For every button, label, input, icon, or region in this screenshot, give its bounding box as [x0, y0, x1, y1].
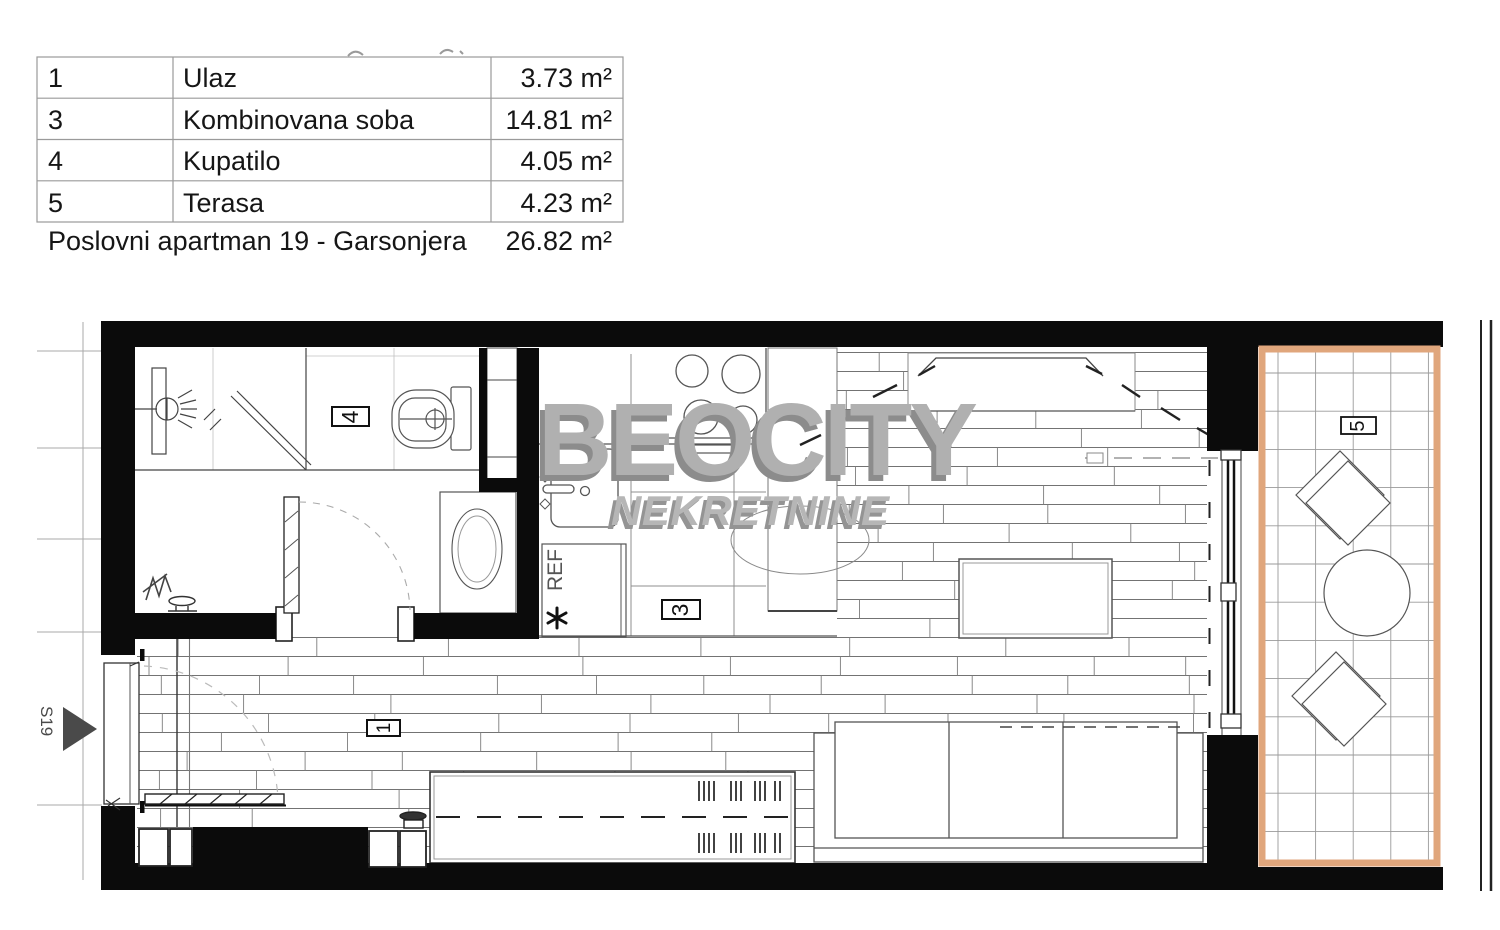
svg-text:Kupatilo: Kupatilo — [183, 146, 281, 176]
svg-text:BEOCITY: BEOCITY — [538, 382, 978, 497]
svg-text:14.81 m²: 14.81 m² — [505, 105, 612, 135]
svg-text:Kombinovana soba: Kombinovana soba — [183, 105, 415, 135]
svg-text:4: 4 — [337, 410, 363, 423]
svg-text:1: 1 — [374, 723, 395, 734]
svg-text:5: 5 — [1347, 420, 1369, 431]
svg-text:4.23 m²: 4.23 m² — [520, 188, 612, 218]
svg-text:Ulaz: Ulaz — [183, 63, 237, 93]
svg-text:NEKRETNINE: NEKRETNINE — [611, 487, 891, 534]
svg-text:3.73 m²: 3.73 m² — [520, 63, 612, 93]
svg-text:4: 4 — [48, 146, 63, 176]
svg-text:3: 3 — [48, 105, 63, 135]
svg-text:S19: S19 — [37, 706, 56, 736]
svg-text:Poslovni apartman 19 - Garsonj: Poslovni apartman 19 - Garsonjera — [48, 226, 468, 256]
svg-text:1: 1 — [48, 63, 63, 93]
svg-text:26.82 m²: 26.82 m² — [505, 226, 612, 256]
svg-text:5: 5 — [48, 188, 63, 218]
svg-text:REF: REF — [544, 549, 567, 591]
svg-text:Terasa: Terasa — [183, 188, 265, 218]
svg-text:4.05 m²: 4.05 m² — [520, 146, 612, 176]
svg-text:3: 3 — [667, 604, 693, 617]
